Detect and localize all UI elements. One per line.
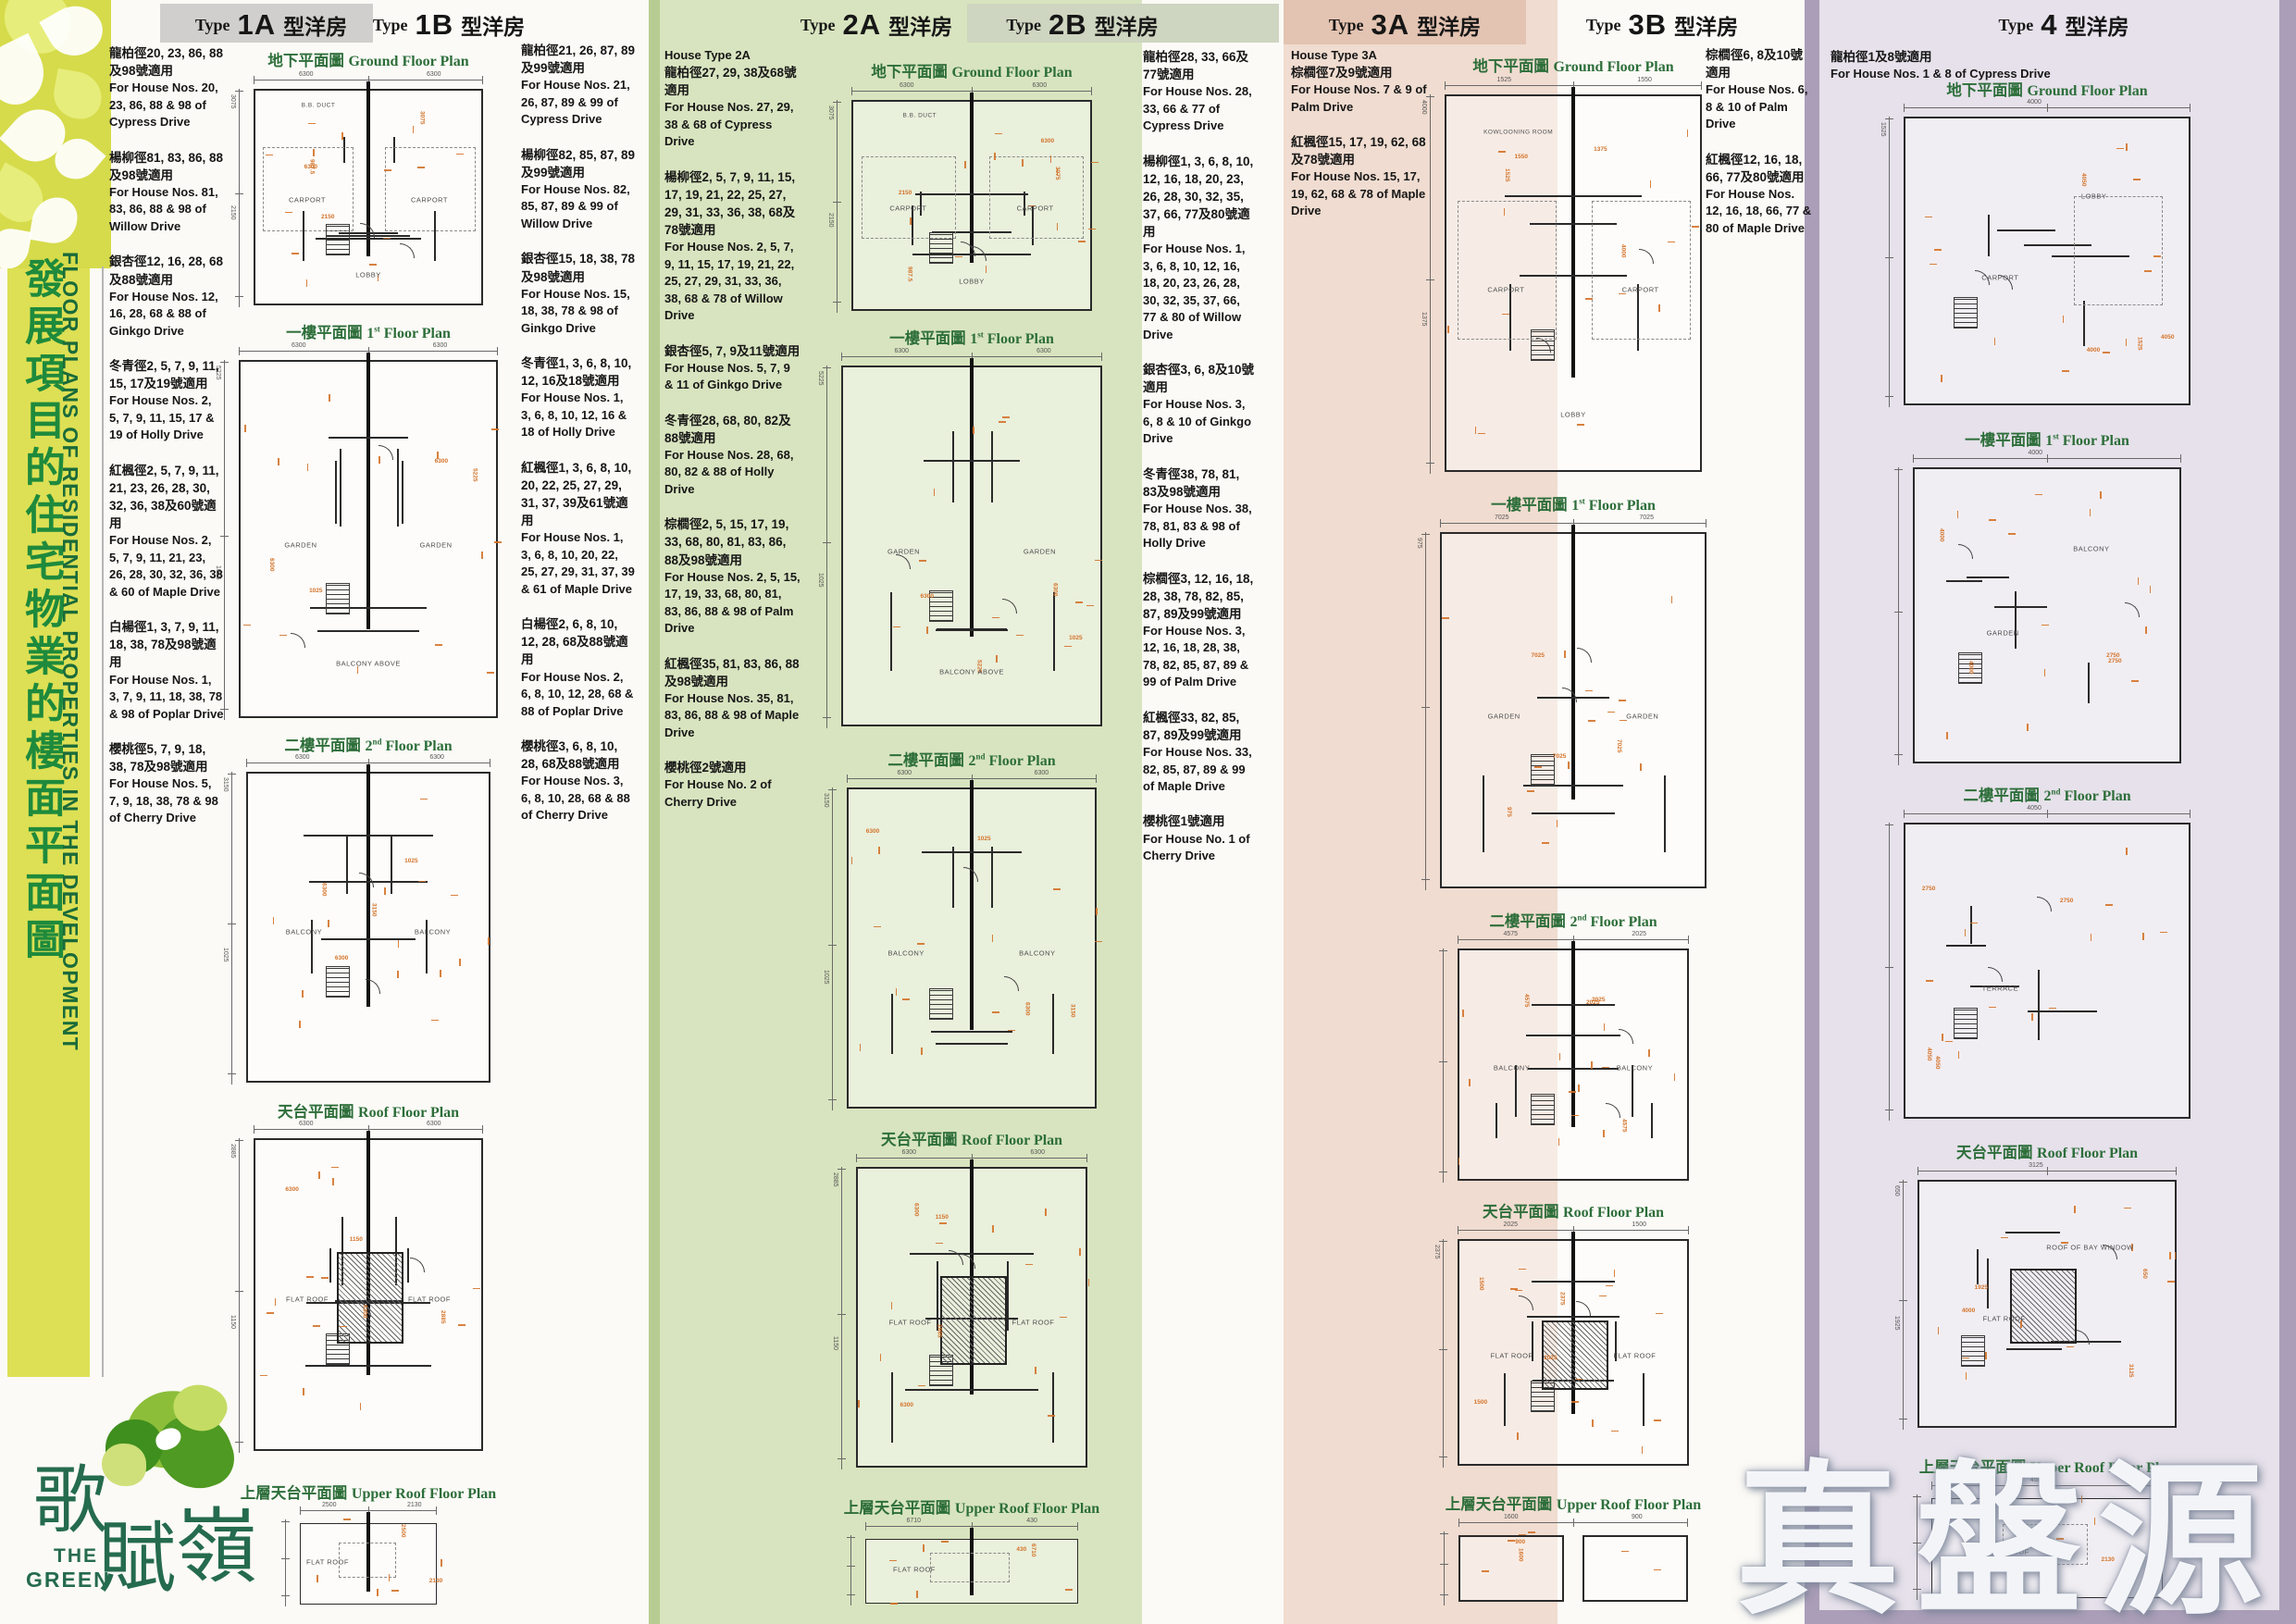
interior-wall xyxy=(1573,697,1609,699)
dimension-value-orange: 2150 xyxy=(899,190,912,196)
dimension-tick xyxy=(1439,1061,1447,1062)
interior-wall xyxy=(972,628,1007,630)
house-note: 冬青徑1, 3, 6, 8, 10, 12, 16及18號適用For House… xyxy=(521,354,636,441)
dimension-mark xyxy=(459,959,461,966)
dimension-mark xyxy=(890,1603,898,1605)
dimension-mark xyxy=(1941,375,1942,382)
dimension-mark xyxy=(2126,339,2128,346)
dimension-mark xyxy=(318,1172,320,1179)
dimension-tick xyxy=(1687,1519,1688,1527)
interior-wall xyxy=(1573,812,1615,814)
dimension-tick xyxy=(1885,1110,1893,1110)
interior-wall xyxy=(2088,663,2090,703)
dimension-tick xyxy=(1426,279,1434,280)
floor-title-en: Upper Roof Floor Plan xyxy=(1557,1497,1701,1513)
room-label: GARDEN xyxy=(887,548,920,556)
floor-plan-title: 一樓平面圖 1st Floor Plan xyxy=(1862,428,2232,450)
interior-wall xyxy=(891,1372,893,1443)
dimension-mark xyxy=(307,464,309,471)
note-street-zh: 楊柳徑81, 83, 86, 88及98號適用 xyxy=(109,149,224,184)
dimension-tick xyxy=(856,1154,857,1162)
dimension-mark xyxy=(1965,929,1967,936)
interior-wall xyxy=(936,1043,972,1045)
dimension-mark xyxy=(417,167,425,168)
interior-wall xyxy=(1532,812,1573,814)
dimension-value: 1925 xyxy=(1893,1316,1900,1331)
interior-wall xyxy=(891,994,893,1054)
dimension-value-orange: 4000 xyxy=(2087,347,2100,353)
room-label: FLAT ROOF xyxy=(893,1566,936,1574)
dimension-value: 5225 xyxy=(817,371,824,386)
floor-title-zh: 一樓平面圖 xyxy=(1491,497,1571,514)
dimension-mark xyxy=(313,149,315,156)
dimension-mark xyxy=(1050,155,1052,163)
dimension-value: 2885 xyxy=(230,1144,236,1159)
dimension-value-orange: 987.5 xyxy=(308,159,315,174)
stairs-hatch xyxy=(1954,1008,1978,1039)
stairs-hatch xyxy=(326,583,350,614)
note-street-en: For House Nos. 35, 81, 83, 86, 88 & 98 o… xyxy=(664,690,801,741)
dimension-value: 7025 xyxy=(1495,514,1509,521)
dimension-mark xyxy=(1542,842,1549,844)
interior-wall xyxy=(1994,606,2047,608)
dimension-value: 1025 xyxy=(222,948,229,962)
dimension-mark xyxy=(1621,1551,1629,1553)
dimension-mark xyxy=(413,126,415,133)
interior-wall xyxy=(972,1031,1012,1033)
dimension-value-orange: 7025 xyxy=(1616,739,1622,752)
floor-title-zh: 天台平面圖 xyxy=(1956,1145,2037,1161)
room-label: KOWLOONING ROOM xyxy=(1483,129,1553,135)
floor-plan-title: 上層天台平面圖 Upper Roof Floor Plan xyxy=(787,1495,1157,1518)
floor-title-en: 2nd Floor Plan xyxy=(2043,788,2130,804)
note-street-en: For House Nos. 2, 5, 7, 9, 11, 15, 17 & … xyxy=(109,392,224,443)
room-label: BALCONY xyxy=(1019,949,1055,958)
interior-wall xyxy=(329,1248,331,1283)
header-type-suffix: 型洋房 xyxy=(283,9,347,41)
dimension-value: 6300 xyxy=(427,1121,441,1127)
note-street-en: For House Nos. 15, 17, 19, 62, 68 & 78 o… xyxy=(1291,168,1432,219)
note-street-zh: 紅楓徑15, 17, 19, 62, 68及78號適用 xyxy=(1291,133,1432,168)
note-street-zh: 銀杏徑3, 6, 8及10號適用 xyxy=(1143,361,1256,396)
dimension-tick xyxy=(1899,1182,1907,1183)
floor-title-zh: 一樓平面圖 xyxy=(889,330,970,347)
dimension-value: 6300 xyxy=(295,754,310,761)
dimension-value-orange: 3075 xyxy=(418,111,425,124)
interior-wall xyxy=(1977,1249,1979,1284)
dimension-tick xyxy=(482,1125,483,1134)
interior-wall xyxy=(1528,1068,1573,1070)
room-label: CARPORT xyxy=(289,196,326,205)
dimension-mark xyxy=(331,1167,339,1169)
floor-plan-drawing: 40502750405027504050TERRACE xyxy=(1880,808,2215,1130)
dimension-mark xyxy=(1599,1295,1607,1297)
dimension-tick xyxy=(841,353,842,361)
dimension-mark xyxy=(2063,316,2065,323)
floor-title-zh: 一樓平面圖 xyxy=(1965,432,2045,449)
note-street-en: For House Nos. 28, 68, 80, 82 & 88 of Ho… xyxy=(664,447,801,498)
floor-title-zh: 地下平面圖 xyxy=(1946,82,2027,99)
dimension-mark xyxy=(1502,314,1509,316)
house-note: 紅楓徑12, 16, 18, 66, 77及80號適用For House Nos… xyxy=(1706,151,1813,238)
room-label: B.B. DUCT xyxy=(302,103,336,109)
dimension-value-orange: 4575 xyxy=(1523,994,1530,1007)
dimension-value-orange: 3075 xyxy=(1054,167,1061,180)
dimension-tick xyxy=(235,296,243,297)
house-notes-left-2: House Type 2A龍柏徑27, 29, 38及68號適用For Hous… xyxy=(664,48,801,828)
dimension-mark xyxy=(1035,1367,1036,1374)
dimension-tick xyxy=(2190,810,2191,818)
room-label: BALCONY xyxy=(286,928,322,936)
dimension-tick xyxy=(1458,936,1458,944)
interior-wall xyxy=(391,836,392,894)
dimension-tick xyxy=(1077,1522,1078,1531)
dimension-value-orange: 1150 xyxy=(936,1214,949,1221)
dimension-mark xyxy=(1002,416,1010,418)
note-street-en: For House Nos. 82, 85, 87, 89 & 99 of Wi… xyxy=(521,181,636,232)
dimension-mark xyxy=(2091,934,2092,941)
carport-outline xyxy=(989,156,1084,239)
interior-wall xyxy=(346,836,348,894)
dimension-tick xyxy=(235,1442,243,1443)
carport-outline xyxy=(1592,201,1692,340)
dimension-tick xyxy=(2047,454,2048,463)
note-street-zh: 龍柏徑28, 33, 66及77號適用 xyxy=(1143,48,1256,83)
dimension-value: 3125 xyxy=(2029,1162,2043,1169)
dimension-value-orange: 900 xyxy=(1515,1539,1525,1545)
dimension-mark xyxy=(273,917,275,924)
dimension-value-orange: 1925 xyxy=(1975,1284,1988,1291)
dimension-tick xyxy=(1096,775,1097,783)
dimension-tick xyxy=(239,347,240,355)
dimension-value: 6300 xyxy=(433,342,448,349)
note-street-zh: 冬青徑2, 5, 7, 9, 11, 15, 17及19號適用 xyxy=(109,357,224,392)
type-header-4: Type4型洋房 xyxy=(1934,6,2193,44)
dimension-tick xyxy=(1458,1519,1459,1527)
logo-green-text: GREEN xyxy=(26,1568,111,1593)
dimension-mark xyxy=(2027,724,2029,731)
dimension-mark xyxy=(1095,941,1102,943)
floor-title-zh: 天台平面圖 xyxy=(1483,1204,1563,1221)
dimension-mark xyxy=(299,1021,301,1028)
dimension-tick xyxy=(1688,1226,1689,1234)
dimension-value: 4050 xyxy=(2027,805,2042,812)
floor-title-zh: 地下平面圖 xyxy=(871,64,951,81)
dimension-mark xyxy=(1060,1317,1067,1319)
dimension-mark xyxy=(992,617,999,619)
dimension-mark xyxy=(456,154,464,155)
dimension-tick xyxy=(1706,519,1706,527)
dimension-value-orange: 6300 xyxy=(866,828,879,835)
dimension-value: 7025 xyxy=(1639,514,1654,521)
dimension-mark xyxy=(2126,143,2128,151)
dimension-value-orange: 2750 xyxy=(2060,898,2073,904)
room-label: GARDEN xyxy=(1024,548,1056,556)
header-type-code: 3A xyxy=(1371,8,1410,42)
house-note: 櫻桃徑2號適用For House No. 2 of Cherry Drive xyxy=(664,759,801,811)
house-note: 紅楓徑2, 5, 7, 9, 11, 21, 23, 26, 28, 30, 3… xyxy=(109,462,224,601)
interior-wall xyxy=(1946,945,1987,947)
brochure-page: 發展項目的住宅物業的樓面平面圖 FLOOR PLANS OF RESIDENTI… xyxy=(0,0,2296,1624)
dimension-mark xyxy=(343,1519,351,1520)
floor-title-zh: 一樓平面圖 xyxy=(286,325,366,341)
stairs-hatch xyxy=(326,966,350,998)
dimension-mark xyxy=(2138,577,2140,585)
dimension-mark xyxy=(278,458,279,465)
dimension-tick xyxy=(828,945,837,946)
dimension-mark xyxy=(2062,370,2069,372)
dimension-mark xyxy=(275,1298,277,1306)
dimension-mark xyxy=(332,1178,334,1185)
dimension-mark xyxy=(1534,766,1542,768)
dimension-line-left xyxy=(1903,1180,1904,1430)
dimension-value: 3075 xyxy=(827,105,834,120)
interior-wall xyxy=(2038,970,2040,1040)
dimension-mark xyxy=(1654,1569,1661,1571)
room-label: FLAT ROOF xyxy=(1011,1318,1054,1326)
dimension-mark xyxy=(1508,1540,1515,1542)
dimension-mark xyxy=(1065,1589,1073,1591)
dimension-mark xyxy=(992,1225,994,1233)
dimension-value: 6300 xyxy=(299,71,314,78)
dimension-tick xyxy=(235,1291,243,1292)
note-street-en: For House Nos. 3, 12, 16, 18, 28, 38, 78… xyxy=(1143,623,1256,691)
dimension-tick xyxy=(281,1595,290,1596)
dimension-mark xyxy=(1602,1067,1609,1069)
dimension-tick xyxy=(1445,81,1446,90)
interior-wall xyxy=(1997,229,2055,231)
dimension-tick xyxy=(1894,612,1903,613)
floor-plan-title: 地下平面圖 Ground Floor Plan xyxy=(1388,54,1758,76)
dimension-value-orange: 430 xyxy=(1016,1546,1026,1553)
floor-plan-drawing: 31256501925400065019253125FLAT ROOFROOF … xyxy=(1893,1165,2201,1439)
note-street-zh: 冬青徑28, 68, 80, 82及88號適用 xyxy=(664,412,801,447)
room-label: LOBBY xyxy=(959,278,985,286)
note-street-en: For House Nos. 7 & 9 of Palm Drive xyxy=(1291,81,1432,116)
building-outline xyxy=(1913,467,2181,763)
header-type-suffix: 型洋房 xyxy=(461,9,525,41)
note-street-en: For House Nos. 21, 26, 87, 89 & 99 of Cy… xyxy=(521,77,636,128)
dimension-value: 6710 xyxy=(907,1518,922,1524)
dimension-line-left xyxy=(832,787,833,1110)
dimension-mark xyxy=(1075,601,1083,603)
floor-title-en: 2nd Floor Plan xyxy=(365,738,452,754)
header-type-word: Type xyxy=(373,16,408,35)
dimension-mark xyxy=(1970,923,1978,924)
room-label: LOBBY xyxy=(1560,410,1586,418)
dimension-tick xyxy=(1439,1457,1447,1457)
header-type-suffix: 型洋房 xyxy=(888,9,952,41)
dimension-value: 4575 xyxy=(1504,931,1519,937)
type-header-3b: Type3B型洋房 xyxy=(1538,6,1786,44)
dimension-mark xyxy=(1585,298,1593,300)
dimension-mark xyxy=(1498,151,1506,153)
interior-wall xyxy=(905,1389,972,1391)
interior-wall xyxy=(1532,1004,1573,1006)
dimension-tick xyxy=(1885,824,1893,825)
header-type-code: 2B xyxy=(1049,8,1087,42)
dimension-line-left xyxy=(1443,948,1444,1183)
room-label: LOBBY xyxy=(355,271,381,279)
house-note: 冬青徑28, 68, 80, 82及88號適用For House Nos. 28… xyxy=(664,412,801,499)
floor-title-en: Roof Floor Plan xyxy=(2037,1146,2138,1161)
house-note: 棕櫚徑3, 12, 16, 18, 28, 38, 78, 82, 85, 87… xyxy=(1143,570,1256,691)
interior-wall xyxy=(1967,576,2010,578)
dimension-mark xyxy=(1692,226,1699,228)
dimension-mark xyxy=(878,847,880,854)
dimension-value-orange: 6710 xyxy=(1030,1543,1036,1556)
dimension-tick xyxy=(1573,1519,1574,1527)
dimension-mark xyxy=(2103,352,2110,353)
room-label: B.B. DUCT xyxy=(903,113,937,119)
dimension-value-orange: 1025 xyxy=(309,588,322,594)
note-street-en: For House Nos. 2, 5, 15, 17, 19, 33, 68,… xyxy=(664,569,801,638)
note-street-en: For House Nos. 12, 16, 18, 66, 77 & 80 o… xyxy=(1706,186,1813,237)
house-note: 楊柳徑82, 85, 87, 89及99號適用For House Nos. 82… xyxy=(521,146,636,233)
interior-wall xyxy=(1573,1035,1620,1036)
dimension-value: 6300 xyxy=(1030,1149,1045,1156)
floor-title-zh: 天台平面圖 xyxy=(881,1132,962,1148)
header-type-word: Type xyxy=(1586,16,1621,35)
dimension-mark xyxy=(858,1400,860,1407)
dimension-tick xyxy=(823,542,831,543)
note-street-en: For House Nos. 28, 33, 66 & 77 of Cypres… xyxy=(1143,83,1256,134)
dimension-value: 650 xyxy=(1893,1185,1900,1196)
dimension-mark xyxy=(302,990,304,998)
dimension-mark xyxy=(1568,762,1570,769)
dimension-tick xyxy=(436,1506,437,1515)
sidebar-title-chinese: 發展項目的住宅物業的樓面平面圖 xyxy=(20,257,61,965)
interior-wall xyxy=(305,1365,368,1367)
dimension-value-orange: 2025 xyxy=(1544,1355,1557,1361)
dimension-line-left xyxy=(285,1519,286,1606)
floor-plan-title: 地下平面圖 Ground Floor Plan xyxy=(1862,78,2232,100)
dimension-mark xyxy=(902,998,910,1000)
dimension-value-orange: 7025 xyxy=(1553,753,1566,760)
interior-wall xyxy=(304,835,368,837)
dimension-mark xyxy=(917,943,925,945)
dimension-value-orange: 4000 xyxy=(1938,528,1944,541)
dimension-value: 900 xyxy=(1632,1514,1643,1520)
dimension-mark xyxy=(2044,669,2046,676)
dimension-value: 2885 xyxy=(832,1172,838,1187)
dimension-tick xyxy=(847,1594,855,1595)
dimension-mark xyxy=(491,428,499,430)
interior-wall xyxy=(972,1043,1008,1045)
dimension-mark xyxy=(1930,264,1937,266)
dimension-mark xyxy=(1938,1327,1940,1334)
interior-wall xyxy=(1946,580,1982,582)
dimension-mark xyxy=(1925,217,1932,218)
dimension-mark xyxy=(244,425,246,432)
floor-plan-drawing: 2500213021302500FLAT ROOF xyxy=(276,1505,461,1616)
dimension-value-orange: 4000 xyxy=(1620,244,1626,257)
dimension-tick xyxy=(1904,810,1905,818)
room-label: TERRACE xyxy=(1982,984,2018,992)
dimension-value-orange: 7025 xyxy=(1532,652,1545,659)
dimension-value: 6300 xyxy=(898,770,912,776)
carport-outline xyxy=(862,156,956,239)
dimension-mark xyxy=(2001,1237,2008,1239)
dimension-value-orange: 6300 xyxy=(361,1305,367,1318)
building-outline xyxy=(1904,823,2191,1119)
house-note: 棕櫚徑2, 5, 15, 17, 19, 33, 68, 80, 81, 83,… xyxy=(664,515,801,637)
dimension-tick xyxy=(1885,118,1893,119)
dimension-value-orange: 4000 xyxy=(1967,661,1974,674)
dimension-mark xyxy=(939,1222,947,1224)
dimension-mark xyxy=(1564,651,1566,658)
interior-wall xyxy=(1052,994,1054,1054)
dimension-value: 1525 xyxy=(1497,77,1512,83)
room-label: GARDEN xyxy=(284,540,316,549)
note-street-en: For House Nos. 3, 6, 8, 10, 28, 68 & 88 … xyxy=(521,773,636,824)
header-type-code: 1A xyxy=(238,8,277,42)
dimension-tick xyxy=(1440,519,1441,527)
dimension-tick xyxy=(1091,87,1092,95)
floor-plan-drawing: 40002750400027504000GARDENBALCONY xyxy=(1889,452,2205,775)
dimension-mark xyxy=(926,626,928,634)
dimension-mark xyxy=(1096,908,1098,915)
dimension-mark xyxy=(2144,270,2152,272)
dimension-mark xyxy=(934,489,936,496)
interior-wall xyxy=(952,847,954,908)
floor-plan-title: 天台平面圖 Roof Floor Plan xyxy=(787,1127,1157,1149)
floor-title-en: 1st Floor Plan xyxy=(2045,433,2129,449)
house-note: 紅楓徑15, 17, 19, 62, 68及78號適用For House Nos… xyxy=(1291,133,1432,220)
dimension-mark xyxy=(321,1277,329,1279)
floor-plan-drawing: 2025150023751500237520251500FLAT ROOFFLA… xyxy=(1433,1224,1713,1477)
interior-wall xyxy=(1505,195,1573,197)
dimension-mark xyxy=(1966,1372,1967,1380)
dimension-line-left xyxy=(826,366,827,728)
dimension-value: 1525 xyxy=(1880,122,1886,137)
building-outline xyxy=(1458,1535,1564,1602)
house-note: 紅楓徑35, 81, 83, 86, 88及98號適用For House Nos… xyxy=(664,655,801,742)
note-street-zh: 紅楓徑12, 16, 18, 66, 77及80號適用 xyxy=(1706,151,1813,186)
dimension-mark xyxy=(2133,179,2141,180)
floor-plan-drawing: 6300630030752150630030752150987.5CARPORT… xyxy=(827,85,1116,322)
note-street-zh: 銀杏徑15, 18, 38, 78及98號適用 xyxy=(521,250,636,285)
dimension-value: 2025 xyxy=(1632,931,1646,937)
floor-title-en: Ground Floor Plan xyxy=(2027,83,2147,99)
dimension-mark xyxy=(1475,427,1477,434)
note-street-zh: 銀杏徑5, 7, 9及11號適用 xyxy=(664,342,801,360)
dimension-mark xyxy=(1994,338,1996,345)
note-street-en: For House Nos. 1, 3, 6, 8, 10, 20, 22, 2… xyxy=(521,529,636,598)
dimension-value-orange: 3150 xyxy=(371,903,378,916)
dimension-mark xyxy=(441,1559,442,1567)
dimension-value-orange: 1375 xyxy=(1594,146,1607,153)
stairs-hatch xyxy=(1531,754,1555,786)
dimension-mark xyxy=(384,169,391,171)
note-street-en: For House Nos. 5, 7, 9, 18, 38, 78 & 98 … xyxy=(109,775,224,826)
note-street-en: For House Nos. 81, 83, 86, 88 & 98 of Wi… xyxy=(109,184,224,235)
dimension-value: 2375 xyxy=(1433,1245,1440,1259)
dimension-value-orange: 6300 xyxy=(921,593,934,600)
room-label: CARPORT xyxy=(1622,285,1659,293)
floor-plan-drawing: 16009009001600 xyxy=(1434,1517,1712,1615)
dimension-mark xyxy=(1517,1432,1519,1440)
upper-roof-inner xyxy=(930,1553,1011,1583)
floor-plan-drawing: 63006300522510256300522510256300GARDENGA… xyxy=(817,351,1126,738)
dimension-value-orange: 6300 xyxy=(1052,583,1059,596)
dimension-mark xyxy=(266,155,273,156)
dimension-tick xyxy=(1421,879,1430,880)
dimension-tick xyxy=(1440,1533,1448,1534)
floor-title-zh: 上層天台平面圖 xyxy=(1446,1496,1557,1513)
dimension-mark xyxy=(398,940,400,948)
room-label: BALCONY xyxy=(415,928,451,936)
